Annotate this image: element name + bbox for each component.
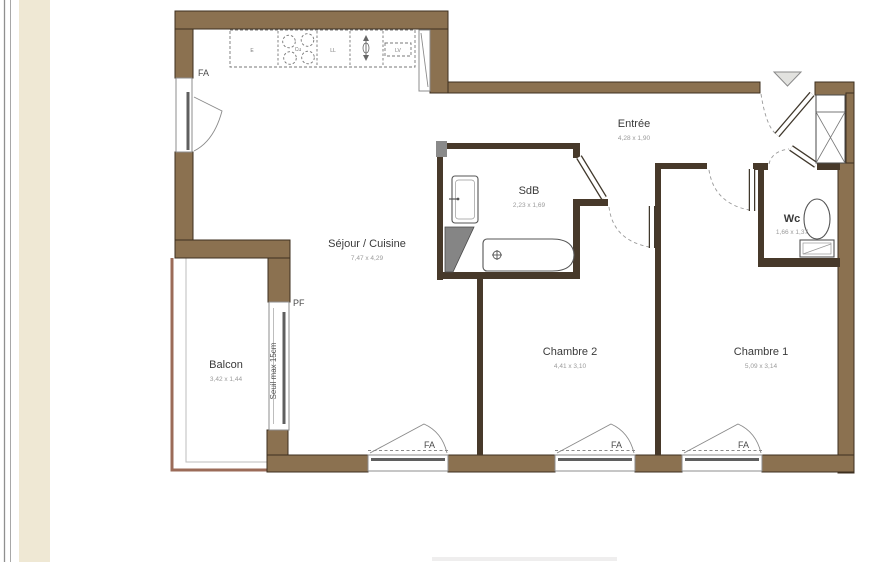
label-sejour: Séjour / Cuisine — [328, 238, 406, 250]
closet-outline — [816, 95, 845, 163]
wall-right — [838, 163, 854, 473]
dims-wc: 1,66 x 1,37 — [776, 229, 809, 236]
window-left-fa — [176, 78, 222, 152]
wall-right-upper — [846, 93, 854, 163]
wall-bottom-2 — [448, 455, 555, 472]
window-frame — [555, 455, 635, 471]
wall-bottom-3 — [635, 455, 682, 472]
partition-chambre2-top — [577, 199, 608, 206]
window-swing — [684, 424, 761, 453]
washbasin-tap-dot — [457, 198, 460, 201]
fa-label-bottom-2: FA — [611, 440, 622, 450]
wall-left-lower — [175, 152, 193, 240]
partition-wc-bottom — [758, 258, 840, 267]
kitchen-washer-label: LL — [330, 48, 336, 54]
wall-top-right — [448, 82, 760, 93]
label-chambre2: Chambre 2 — [543, 346, 597, 358]
fa-label-bottom-1: FA — [424, 440, 435, 450]
page-margin-stripe — [19, 0, 50, 562]
label-balcon: Balcon — [209, 359, 243, 371]
interior-partitions — [436, 141, 840, 455]
partition-chambre1-chambre2 — [655, 163, 661, 455]
label-wc: Wc — [784, 213, 801, 225]
partition-wc-top-right — [817, 163, 840, 170]
kitchen-hob-label: Cu — [295, 47, 302, 53]
wall-pf-lower — [267, 430, 288, 456]
window-swing — [370, 424, 447, 453]
dims-sdb: 2,23 x 1,69 — [513, 202, 546, 209]
entrance-door — [761, 94, 812, 135]
wall-bottom-1 — [267, 455, 368, 472]
partition-sdb-left — [437, 143, 443, 280]
wall-bottom-4 — [762, 455, 854, 472]
door-arc — [709, 170, 749, 210]
kitchen-dishwasher-label: LV — [395, 48, 401, 54]
bathroom-fixtures — [449, 176, 574, 271]
door-leaf — [579, 157, 604, 198]
dims-chambre2: 4,41 x 3,10 — [554, 363, 587, 370]
partition-sejour-chambre2 — [477, 279, 483, 455]
door-sdb — [579, 157, 604, 198]
window-frame — [176, 78, 192, 152]
door-chambre1 — [709, 169, 752, 211]
kitchen-counter: E Cu LL LV — [230, 30, 415, 67]
cropped-caption-smudge — [432, 557, 617, 561]
dims-entree: 4,28 x 1,90 — [618, 135, 651, 142]
door-leaf — [777, 94, 812, 135]
label-sdb: SdB — [519, 185, 540, 197]
window-bottom-sejour — [368, 424, 448, 471]
entrance-closet — [816, 95, 845, 163]
wall-top-jog — [430, 29, 448, 93]
wall-left-upper — [175, 29, 193, 78]
wall-balcony-top — [175, 240, 290, 258]
toilet-cistern — [800, 240, 834, 257]
door-leaf — [791, 148, 816, 165]
partition-wc-top-left — [753, 163, 768, 170]
wc-fixtures — [800, 199, 834, 257]
window-frame — [368, 455, 448, 471]
partition-sdb-top — [441, 143, 580, 149]
window-swing — [194, 97, 222, 151]
window-kitchen-fixed — [419, 30, 430, 91]
door-arc — [609, 207, 649, 247]
wall-pf-upper — [268, 258, 290, 302]
window-frame — [682, 455, 762, 471]
label-entree: Entrée — [618, 118, 650, 130]
partition-sdb-right-lower — [573, 199, 580, 279]
dims-chambre1: 5,09 x 3,14 — [745, 363, 778, 370]
seuil-label: Seuil max 15cm — [269, 342, 278, 399]
partition-chambre1-top — [655, 163, 707, 169]
door-arc — [769, 149, 789, 164]
floor-plan-drawing: E Cu LL LV Séjour / Cuisine 7,47 x 4,29 … — [0, 0, 872, 562]
dims-balcon: 3,42 x 1,44 — [210, 376, 243, 383]
window-swing — [557, 424, 634, 453]
floor-plan-page: E Cu LL LV Séjour / Cuisine 7,47 x 4,29 … — [0, 0, 872, 562]
window-bottom-chambre2 — [555, 424, 635, 471]
door-chambre2 — [609, 206, 652, 248]
pf-label: PF — [293, 298, 305, 308]
partition-wc-left — [758, 168, 764, 262]
door-wc — [769, 148, 816, 165]
fa-label-bottom-3: FA — [738, 440, 749, 450]
wall-top-left — [175, 11, 448, 29]
partition-sdb-right-stub — [573, 143, 580, 158]
dims-sejour: 7,47 x 4,29 — [351, 255, 384, 262]
duct-block — [436, 141, 447, 157]
door-arc — [761, 94, 776, 134]
label-chambre1: Chambre 1 — [734, 346, 788, 358]
technical-shaft — [445, 227, 474, 272]
partition-sdb-bottom — [437, 272, 580, 279]
fa-label-left: FA — [198, 68, 209, 78]
entry-arrow-icon — [774, 72, 801, 86]
window-bottom-chambre1 — [682, 424, 762, 471]
